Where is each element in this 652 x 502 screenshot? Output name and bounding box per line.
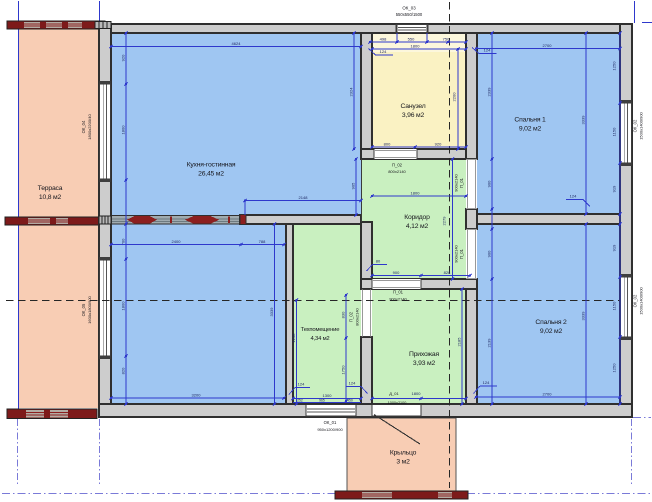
svg-text:2700: 2700 xyxy=(543,391,553,396)
svg-text:Санузел: Санузел xyxy=(400,103,425,110)
svg-text:9,02 м2: 9,02 м2 xyxy=(540,328,563,335)
svg-text:1238: 1238 xyxy=(291,333,296,343)
svg-text:4,12 м2: 4,12 м2 xyxy=(406,223,429,230)
svg-text:920: 920 xyxy=(435,141,442,146)
svg-text:124: 124 xyxy=(483,380,490,385)
svg-text:919: 919 xyxy=(612,244,617,251)
svg-text:919: 919 xyxy=(612,185,617,192)
svg-text:1500х1400/900: 1500х1400/900 xyxy=(639,111,644,139)
svg-text:3,96 м2: 3,96 м2 xyxy=(402,112,425,119)
svg-text:ОК_02: ОК_02 xyxy=(633,119,638,132)
svg-text:920: 920 xyxy=(120,54,125,61)
svg-text:3 м2: 3 м2 xyxy=(396,459,410,466)
svg-text:П_02: П_02 xyxy=(392,163,403,168)
svg-text:Крыльцо: Крыльцо xyxy=(390,450,417,457)
svg-text:124: 124 xyxy=(349,381,356,386)
svg-text:2148: 2148 xyxy=(299,195,309,200)
svg-text:1250: 1250 xyxy=(612,363,617,373)
svg-text:ОК_01: ОК_01 xyxy=(324,420,337,425)
svg-text:2279: 2279 xyxy=(442,216,447,226)
svg-text:900: 900 xyxy=(486,250,491,257)
svg-text:Прихожая: Прихожая xyxy=(409,351,439,358)
svg-text:2139: 2139 xyxy=(486,338,491,348)
svg-text:Терраса: Терраса xyxy=(38,185,63,192)
svg-text:4,34 м2: 4,34 м2 xyxy=(310,336,329,342)
svg-text:4624: 4624 xyxy=(232,41,242,46)
svg-text:800: 800 xyxy=(384,141,391,146)
svg-text:26,45 м2: 26,45 м2 xyxy=(198,171,224,178)
svg-text:252: 252 xyxy=(297,399,303,403)
svg-text:830: 830 xyxy=(340,311,345,318)
svg-text:Спальня 1: Спальня 1 xyxy=(514,117,546,124)
svg-text:820: 820 xyxy=(120,367,125,374)
svg-text:Коридор: Коридор xyxy=(404,214,430,221)
svg-text:1150: 1150 xyxy=(612,127,617,136)
svg-text:800х2140: 800х2140 xyxy=(388,169,406,174)
svg-text:1800: 1800 xyxy=(412,391,422,396)
svg-text:1800: 1800 xyxy=(411,43,421,48)
svg-text:1300: 1300 xyxy=(323,393,333,398)
svg-text:124: 124 xyxy=(380,49,387,54)
svg-text:124: 124 xyxy=(298,382,305,387)
svg-text:1800: 1800 xyxy=(411,190,421,195)
svg-text:2339: 2339 xyxy=(486,87,491,97)
svg-text:788: 788 xyxy=(259,239,266,244)
svg-text:10,8 м2: 10,8 м2 xyxy=(39,194,62,201)
svg-text:498: 498 xyxy=(380,36,387,41)
svg-text:965: 965 xyxy=(319,399,325,403)
svg-text:Спальня 2: Спальня 2 xyxy=(535,319,567,326)
svg-text:900х2140: 900х2140 xyxy=(454,244,459,262)
svg-text:П_01: П_01 xyxy=(459,248,464,259)
svg-text:1800х2200/40: 1800х2200/40 xyxy=(87,114,92,140)
svg-text:3339: 3339 xyxy=(580,311,585,321)
svg-text:800х2140: 800х2140 xyxy=(355,307,360,325)
svg-text:905: 905 xyxy=(350,182,355,189)
svg-text:2324: 2324 xyxy=(348,87,353,97)
svg-text:900х2140: 900х2140 xyxy=(389,297,407,302)
svg-text:80: 80 xyxy=(376,259,381,264)
svg-text:1800: 1800 xyxy=(120,125,125,135)
svg-text:9,02 м2: 9,02 м2 xyxy=(519,126,542,133)
svg-text:3339: 3339 xyxy=(580,115,585,125)
svg-text:450: 450 xyxy=(347,399,353,403)
svg-text:1800: 1800 xyxy=(120,301,125,311)
svg-text:ОК_02: ОК_02 xyxy=(633,294,638,307)
svg-text:Д_01: Д_01 xyxy=(389,391,399,396)
svg-text:3200: 3200 xyxy=(192,392,202,397)
svg-text:550х550/1500: 550х550/1500 xyxy=(396,12,423,17)
svg-text:900: 900 xyxy=(393,270,400,275)
svg-text:750: 750 xyxy=(443,36,450,41)
svg-text:828: 828 xyxy=(444,270,451,275)
svg-text:2200: 2200 xyxy=(452,92,457,102)
svg-text:1600х1800/900: 1600х1800/900 xyxy=(87,295,92,323)
svg-text:1150: 1150 xyxy=(612,301,617,310)
svg-text:1250: 1250 xyxy=(612,61,617,71)
svg-text:2700: 2700 xyxy=(543,43,553,48)
svg-text:124: 124 xyxy=(570,194,577,199)
svg-text:П_01: П_01 xyxy=(459,177,464,188)
svg-text:900: 900 xyxy=(486,180,491,187)
svg-text:ОК_04: ОК_04 xyxy=(81,120,86,133)
svg-text:1000х2100: 1000х2100 xyxy=(388,401,407,405)
svg-text:3,93 м2: 3,93 м2 xyxy=(413,360,436,367)
svg-text:550: 550 xyxy=(408,36,415,41)
svg-text:1500х1400/900: 1500х1400/900 xyxy=(639,286,644,314)
svg-text:П_01: П_01 xyxy=(393,290,404,295)
svg-text:ОК_03: ОК_03 xyxy=(402,6,416,11)
svg-text:П_02: П_02 xyxy=(349,311,354,322)
svg-text:3339: 3339 xyxy=(269,307,274,317)
svg-text:900х2140: 900х2140 xyxy=(454,173,459,191)
svg-text:1750: 1750 xyxy=(340,365,345,375)
svg-text:Техпомещение: Техпомещение xyxy=(301,327,341,333)
svg-text:ОК_05: ОК_05 xyxy=(81,303,86,316)
svg-text:2400: 2400 xyxy=(172,239,182,244)
svg-text:950х1200/900: 950х1200/900 xyxy=(317,427,343,432)
svg-text:2185: 2185 xyxy=(456,337,461,347)
svg-text:Кухня-гостинная: Кухня-гостинная xyxy=(187,162,236,169)
